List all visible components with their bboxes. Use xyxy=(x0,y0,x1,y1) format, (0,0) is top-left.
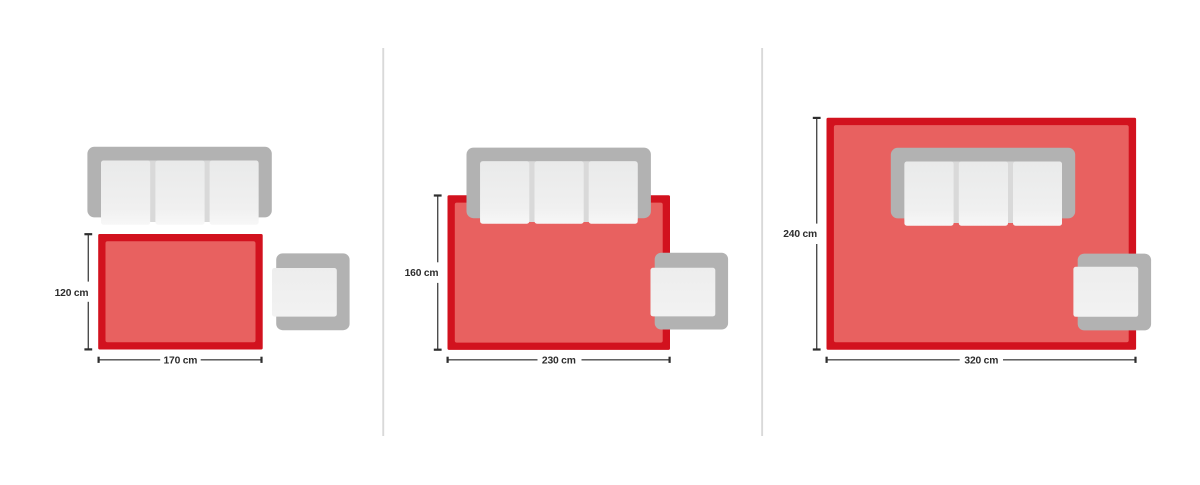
svg-text:320 cm: 320 cm xyxy=(964,356,998,367)
svg-text:120 cm: 120 cm xyxy=(55,288,89,299)
svg-text:240 cm: 240 cm xyxy=(783,229,817,240)
svg-text:170 cm: 170 cm xyxy=(164,356,198,367)
svg-text:160 cm: 160 cm xyxy=(405,268,439,279)
svg-text:230 cm: 230 cm xyxy=(542,356,576,367)
